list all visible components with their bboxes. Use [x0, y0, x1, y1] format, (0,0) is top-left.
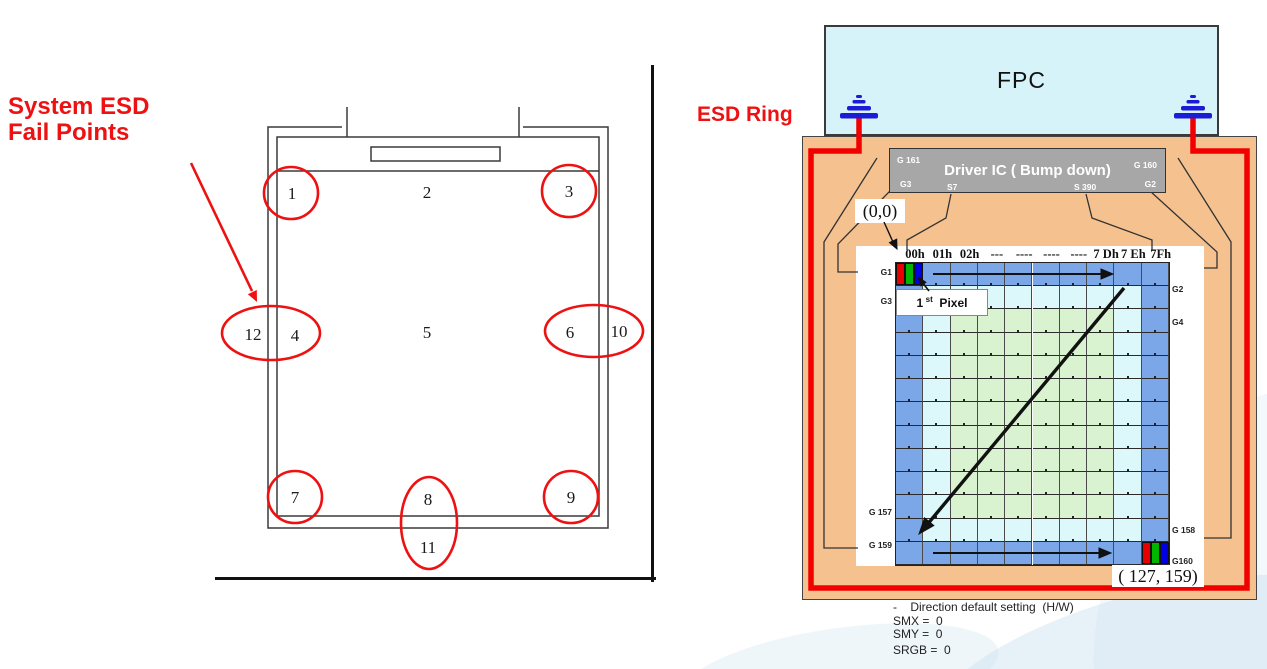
grid-cell: [923, 472, 950, 495]
grid-cell: [1060, 402, 1087, 425]
grid-cell: [923, 263, 950, 286]
grid-cell: [1114, 286, 1141, 309]
last-pixel-rgb: [1142, 542, 1169, 565]
grid-cell: [1142, 402, 1169, 425]
grid-cell: [896, 426, 923, 449]
fail-point-label: 3: [565, 182, 574, 201]
grid-cell: [1114, 542, 1141, 565]
grid-cell: [1114, 309, 1141, 332]
fpc-box: FPC: [824, 25, 1219, 136]
grid-cell: [896, 449, 923, 472]
grid-cell: [1005, 426, 1032, 449]
grid-cell: [1087, 495, 1114, 518]
fail-point-ellipses: [222, 165, 643, 569]
grid-cell: [896, 356, 923, 379]
fail-point-ellipse: [268, 471, 322, 523]
grid-cell: [1142, 426, 1169, 449]
grid-cell: [1087, 449, 1114, 472]
note-line: SMX = 0: [893, 615, 1074, 629]
grid-cell: [951, 542, 978, 565]
grid-cell: [1033, 356, 1060, 379]
driver-ic-pin-s7: S7: [947, 182, 957, 192]
driver-ic-pin-g3: G3: [900, 179, 911, 189]
grid-cell: [1033, 402, 1060, 425]
grid-cell: [1060, 472, 1087, 495]
grid-cell: [923, 379, 950, 402]
fail-point-label: 8: [424, 490, 433, 509]
grid-cell: [1033, 379, 1060, 402]
grid-cell: [951, 263, 978, 286]
grid-cell: [1005, 519, 1032, 542]
grid-cell: [978, 263, 1005, 286]
fail-point-label: 4: [291, 326, 300, 345]
grid-cell: [1005, 495, 1032, 518]
grid-cell: [896, 379, 923, 402]
grid-cell: [896, 542, 923, 565]
grid-cell: [923, 495, 950, 518]
subpixel-green: [1151, 542, 1160, 564]
grid-cell: [1033, 426, 1060, 449]
grid-cell: [1033, 286, 1060, 309]
grid-cell: [1060, 379, 1087, 402]
grid-cell: [1087, 379, 1114, 402]
grid-cell: [923, 333, 950, 356]
grid-cell: [1114, 263, 1141, 286]
grid-cell: [978, 449, 1005, 472]
grid-cell: [978, 519, 1005, 542]
grid-cell: [1060, 356, 1087, 379]
col-header: 7Fh: [1150, 247, 1171, 262]
grid-cell: [1033, 542, 1060, 565]
grid-cell: [1114, 449, 1141, 472]
col-header: 00h: [905, 247, 924, 262]
grid-cell: [1060, 286, 1087, 309]
fail-point-ellipse: [401, 477, 457, 569]
grid-cell: [1087, 542, 1114, 565]
col-header: ----: [1043, 247, 1060, 262]
subpixel-red: [896, 263, 905, 285]
grid-cell: [978, 402, 1005, 425]
grid-cell: [951, 495, 978, 518]
grid-cell: [1114, 519, 1141, 542]
grid-cell: [1087, 263, 1114, 286]
grid-cell: [1087, 402, 1114, 425]
grid-cell: [978, 356, 1005, 379]
grid-cell: [1142, 379, 1169, 402]
grid-cell: [978, 379, 1005, 402]
grid-cell: [1142, 519, 1169, 542]
driver-ic-pin-g2: G2: [1145, 179, 1156, 189]
grid-cell: [1060, 333, 1087, 356]
grid-cell: [1060, 449, 1087, 472]
grid-cell: [951, 356, 978, 379]
grid-cell: [1087, 519, 1114, 542]
col-header: ---: [991, 247, 1004, 262]
grid-cell: [951, 426, 978, 449]
fail-point-ellipse: [545, 305, 643, 357]
grid-cell: [1033, 472, 1060, 495]
grid-cell: [923, 519, 950, 542]
gate-label-right: G 158: [1172, 525, 1195, 535]
grid-cell: [1142, 309, 1169, 332]
col-header: 01h: [933, 247, 952, 262]
subpixel-red: [1142, 542, 1151, 564]
grid-cell: [896, 333, 923, 356]
grid-cell: [1060, 495, 1087, 518]
grid-cell: [1114, 333, 1141, 356]
note-line: SRGB = 0: [893, 644, 1074, 658]
grid-cell: [1060, 263, 1087, 286]
fail-points-title: System ESD Fail Points: [8, 94, 149, 147]
subpixel-blue: [1160, 542, 1169, 564]
fpc-label: FPC: [997, 67, 1046, 94]
grid-cell: [951, 472, 978, 495]
grid-cell: [1060, 426, 1087, 449]
grid-cell: [1142, 495, 1169, 518]
grid-cell: [1114, 356, 1141, 379]
grid-cell: [1005, 472, 1032, 495]
grid-cell: [951, 449, 978, 472]
fail-point-label: 12: [245, 325, 262, 344]
panel-outline: [268, 107, 608, 528]
gate-label-right: G2: [1172, 284, 1183, 294]
grid-cell: [896, 402, 923, 425]
grid-cell: [1005, 449, 1032, 472]
subpixel-blue: [914, 263, 923, 285]
grid-cell: [1142, 263, 1169, 286]
grid-cell: [1114, 426, 1141, 449]
fail-point-numbers: 123456789101112: [245, 182, 628, 557]
driver-ic-title: Driver IC ( Bump down): [890, 162, 1165, 179]
grid-cell: [1005, 263, 1032, 286]
grid-cell: [1087, 472, 1114, 495]
grid-cell: [923, 449, 950, 472]
grid-cell: [896, 495, 923, 518]
grid-cell: [1087, 426, 1114, 449]
grid-cell: [1114, 402, 1141, 425]
col-header: ----: [1016, 247, 1033, 262]
grid-cell: [951, 402, 978, 425]
fail-point-label: 11: [420, 538, 436, 557]
grid-cell: [1087, 333, 1114, 356]
grid-cell: [978, 426, 1005, 449]
grid-cell: [1005, 542, 1032, 565]
fail-point-label: 10: [611, 322, 628, 341]
col-header: ----: [1070, 247, 1087, 262]
fail-point-label: 2: [423, 183, 432, 202]
grid-cell: [1087, 286, 1114, 309]
first-pixel-callout: 1 st Pixel: [896, 289, 988, 316]
grid-cell: [1142, 333, 1169, 356]
note-line: SMY = 0: [893, 628, 1074, 642]
grid-cell: [951, 519, 978, 542]
grid-cell: [923, 356, 950, 379]
esd-ring-label: ESD Ring: [697, 103, 793, 127]
fail-point-ellipse: [544, 471, 598, 523]
grid-cell: [1005, 356, 1032, 379]
fail-point-ellipse: [222, 306, 320, 360]
grid-cell: [978, 542, 1005, 565]
grid-cell: [1087, 356, 1114, 379]
origin-label: (0,0): [863, 201, 898, 222]
grid-cell: [896, 519, 923, 542]
grid-cell: [923, 542, 950, 565]
grid-cell: [923, 426, 950, 449]
grid-cell: [1114, 472, 1141, 495]
grid-cell: [1005, 402, 1032, 425]
grid-cell: [1060, 309, 1087, 332]
fail-points-arrow: [191, 163, 257, 302]
grid-cell: [896, 472, 923, 495]
grid-cell: [1142, 356, 1169, 379]
fail-point-label: 9: [567, 488, 576, 507]
subpixel-green: [905, 263, 914, 285]
grid-cell: [1033, 519, 1060, 542]
note-line: - Direction default setting (H/W): [893, 601, 1074, 615]
grid-cell: [1005, 286, 1032, 309]
grid-cell: [1060, 542, 1087, 565]
grid-cell: [951, 333, 978, 356]
fail-point-ellipse: [264, 167, 318, 219]
grid-cell: [1005, 309, 1032, 332]
slide-canvas: System ESD Fail Points ESD Ring FPC G 16…: [0, 0, 1267, 669]
first-pixel-rgb: [896, 263, 923, 286]
grid-cell: [978, 333, 1005, 356]
grid-cell: [951, 379, 978, 402]
grid-cell: [923, 402, 950, 425]
fail-point-label: 1: [288, 184, 297, 203]
grid-cell: [1033, 495, 1060, 518]
driver-ic: G 161 G 160 G3 S7 S 390 G2 Driver IC ( B…: [889, 148, 1166, 193]
gate-label-left: G3: [856, 296, 892, 306]
gate-label-left: G 159: [856, 540, 892, 550]
col-header: 7 Eh: [1121, 247, 1146, 262]
grid-cell: [1142, 472, 1169, 495]
fail-point-label: 6: [566, 323, 575, 342]
grid-cell: [1033, 309, 1060, 332]
fail-point-label: 7: [291, 488, 300, 507]
grid-cell: [1087, 309, 1114, 332]
grid-cell: [1142, 449, 1169, 472]
first-pixel-label: 1 st Pixel: [917, 295, 968, 310]
col-header: 7 Dh: [1093, 247, 1118, 262]
grid-cell: [1033, 333, 1060, 356]
col-header: 02h: [960, 247, 979, 262]
grid-cell: [1033, 449, 1060, 472]
grid-cell: [1142, 286, 1169, 309]
direction-default-notes: - Direction default setting (H/W)SMX = 0…: [893, 601, 1074, 657]
driver-ic-pin-s390: S 390: [1074, 182, 1096, 192]
grid-cell: [1005, 333, 1032, 356]
gate-label-left: G 157: [856, 507, 892, 517]
fail-points-title-line2: Fail Points: [8, 120, 149, 146]
grid-cell: [978, 495, 1005, 518]
grid-cell: [1033, 263, 1060, 286]
grid-cell: [1005, 379, 1032, 402]
last-pixel-coordinate: ( 127, 159): [1112, 565, 1204, 587]
grid-cell: [1060, 519, 1087, 542]
grid-cell: [978, 472, 1005, 495]
grid-cell: [1114, 379, 1141, 402]
fail-point-ellipse: [542, 165, 596, 217]
gate-label-right: G4: [1172, 317, 1183, 327]
grid-cell: [1114, 495, 1141, 518]
origin-label-box: (0,0): [855, 199, 905, 223]
last-pixel-label: ( 127, 159): [1118, 566, 1198, 587]
fail-point-label: 5: [423, 323, 432, 342]
gate-label-left: G1: [856, 267, 892, 277]
fail-points-title-line1: System ESD: [8, 94, 149, 120]
divider-frame: [215, 65, 656, 582]
